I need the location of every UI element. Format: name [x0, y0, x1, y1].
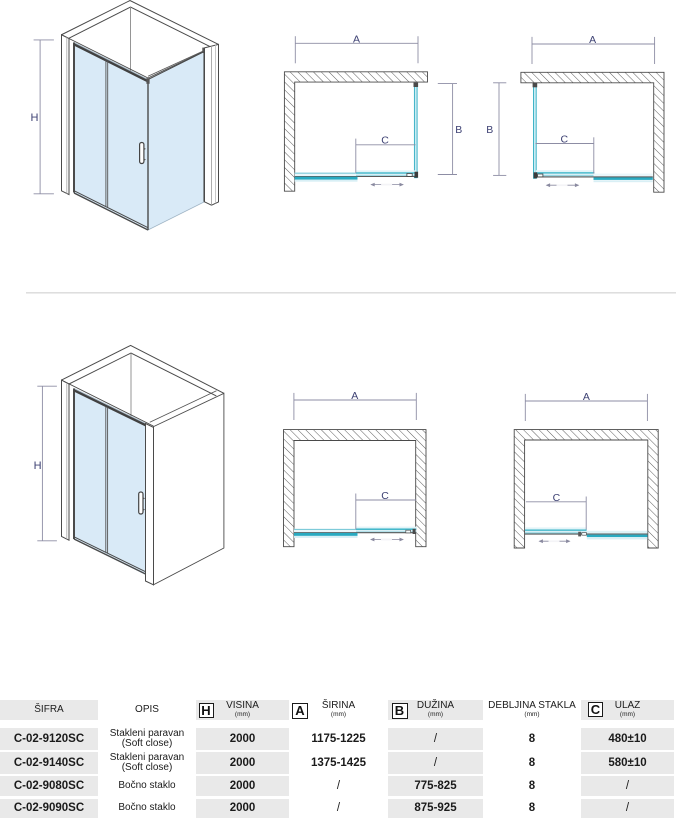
svg-text:C: C — [381, 490, 389, 502]
svg-text:C: C — [381, 135, 389, 147]
svg-text:C: C — [553, 492, 561, 504]
svg-text:C: C — [561, 133, 569, 145]
svg-text:A: A — [353, 33, 360, 45]
svg-text:H: H — [31, 112, 39, 124]
svg-text:B: B — [486, 124, 493, 136]
svg-text:A: A — [589, 34, 596, 46]
svg-text:H: H — [34, 460, 42, 472]
svg-text:A: A — [351, 390, 358, 402]
svg-text:A: A — [583, 391, 590, 403]
svg-text:B: B — [455, 124, 462, 136]
